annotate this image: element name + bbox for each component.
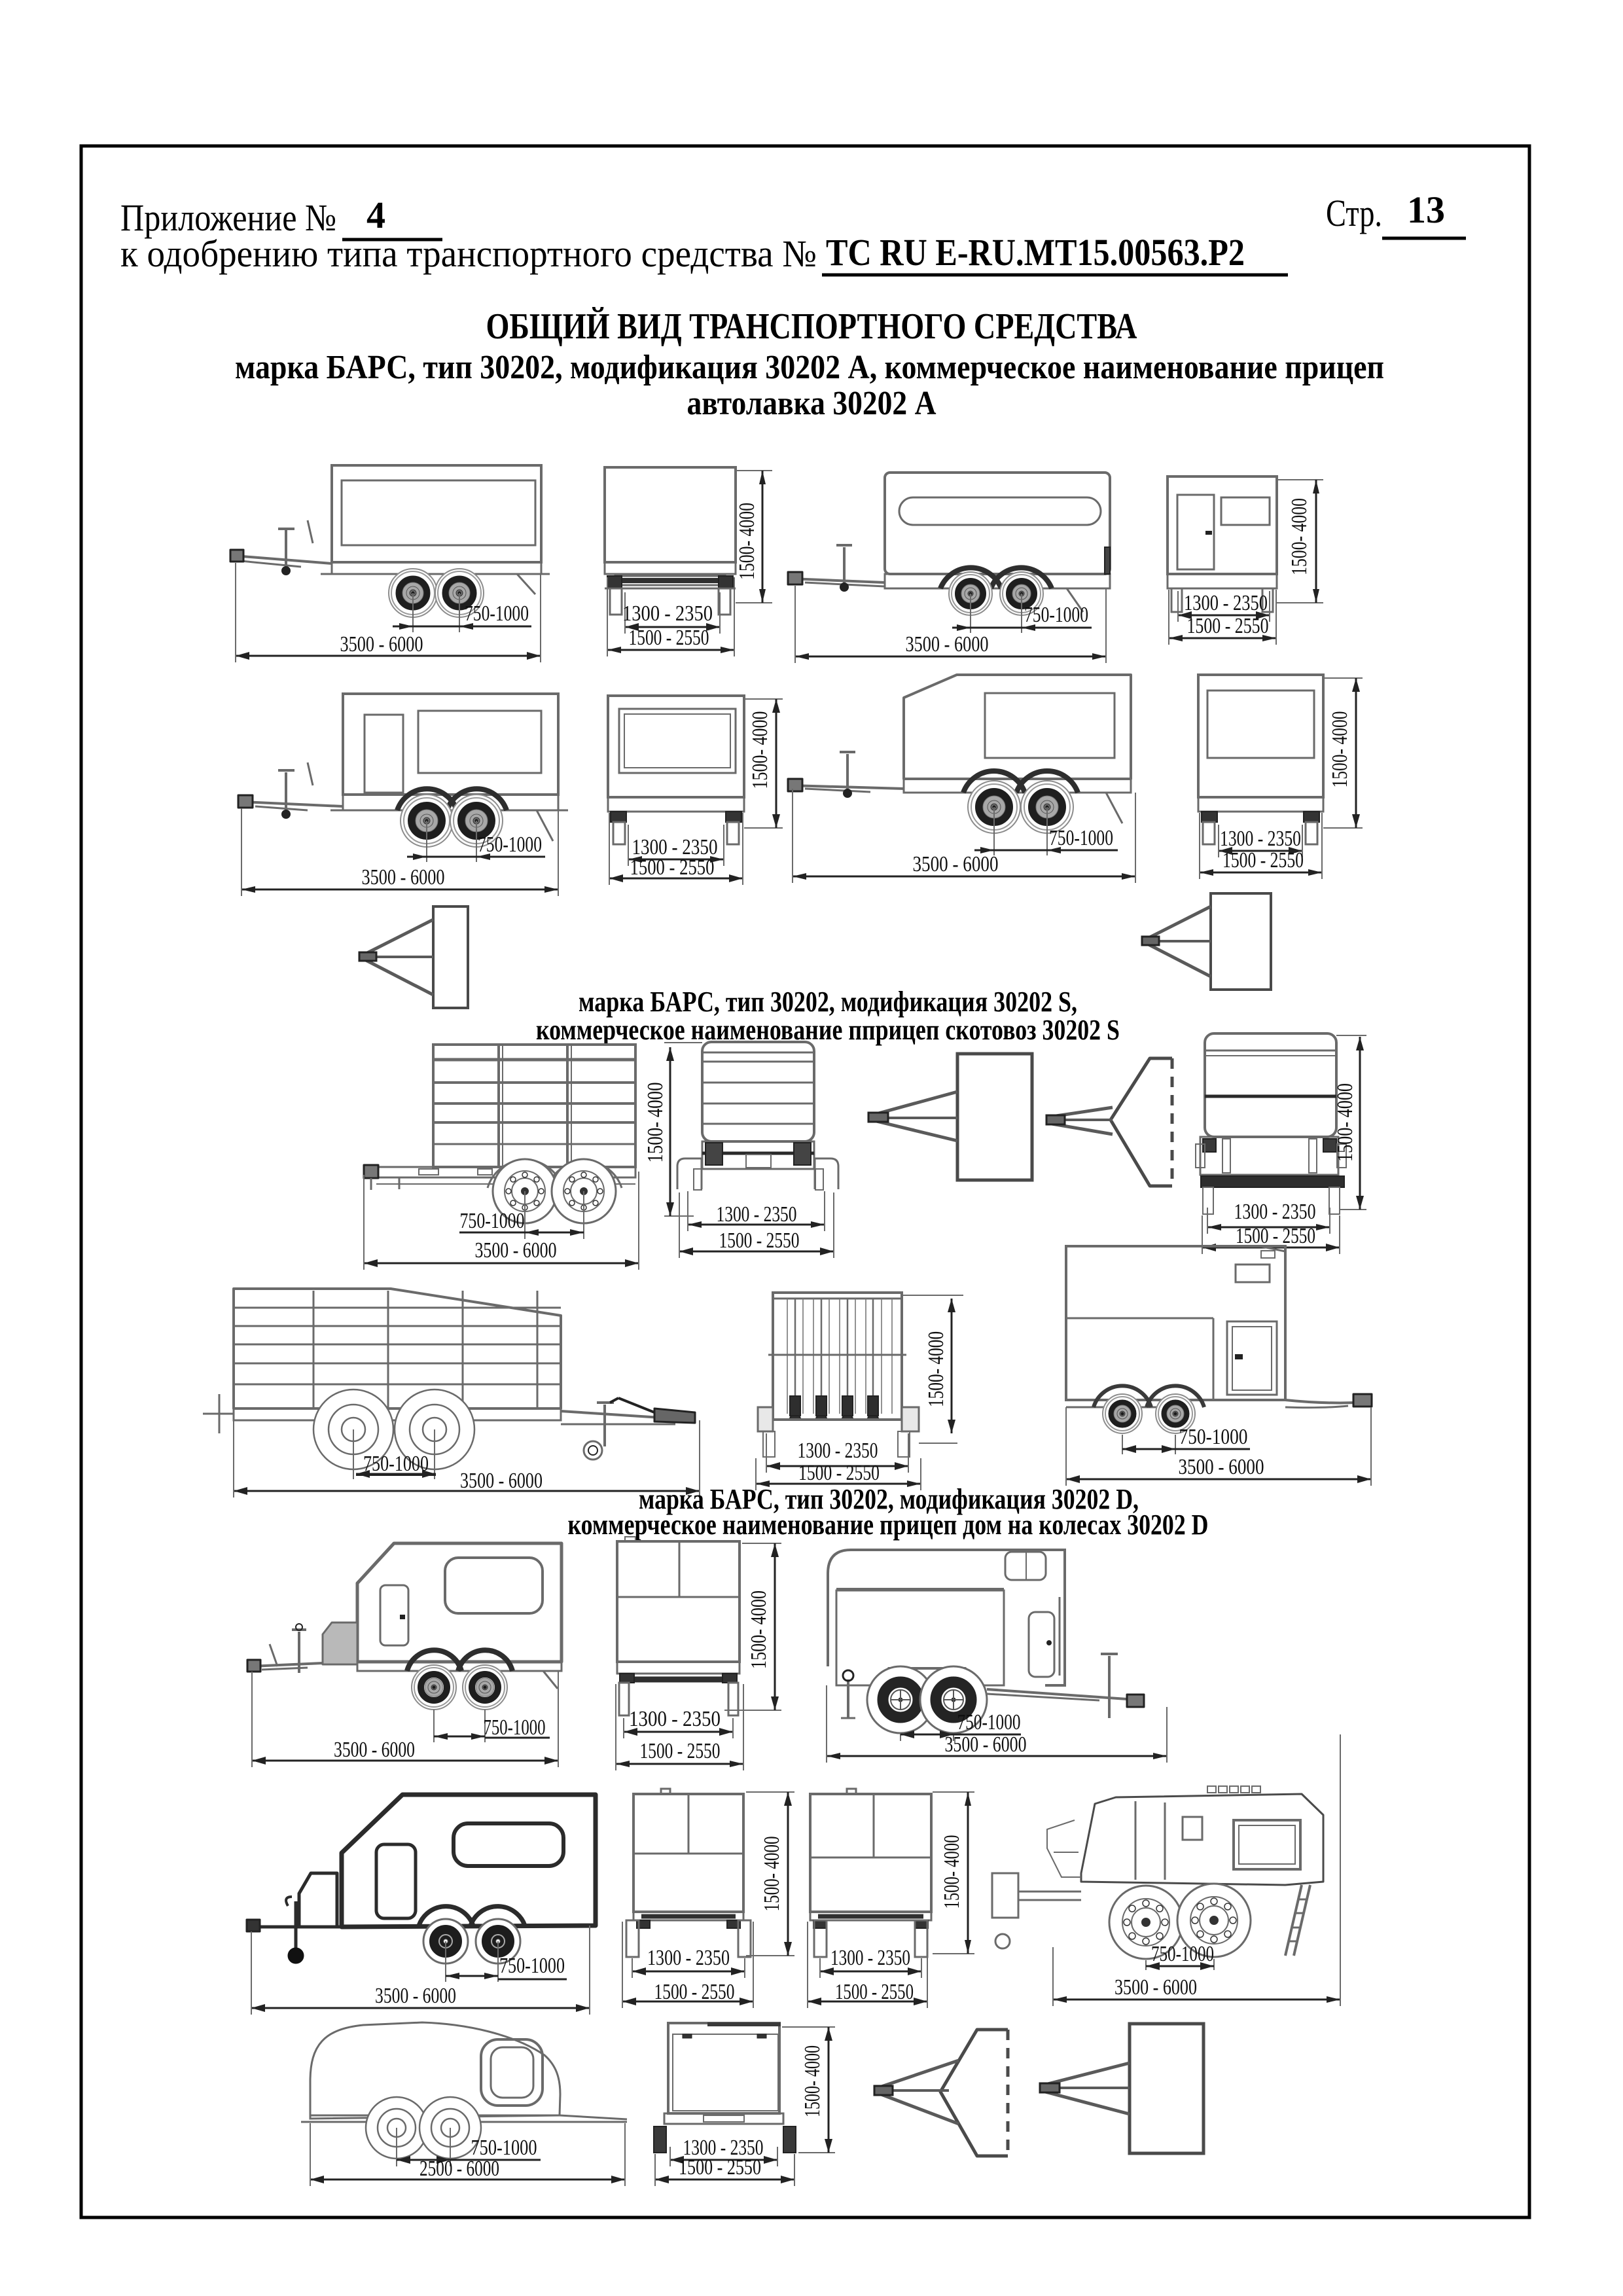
- svg-text:1500 - 2550: 1500 - 2550: [679, 2155, 761, 2179]
- svg-text:1300 - 2350: 1300 - 2350: [1220, 827, 1301, 851]
- svg-text:1500 - 2550: 1500 - 2550: [798, 1461, 880, 1485]
- svg-text:750-1000: 750-1000: [1024, 603, 1088, 627]
- svg-text:3500 - 6000: 3500 - 6000: [375, 1984, 456, 2008]
- svg-text:Стр.: Стр.: [1326, 192, 1382, 234]
- svg-text:1500- 4000: 1500- 4000: [800, 2045, 825, 2117]
- svg-text:750-1000: 750-1000: [478, 833, 542, 857]
- svg-text:3500 - 6000: 3500 - 6000: [906, 632, 989, 656]
- svg-text:750-1000: 750-1000: [460, 1209, 525, 1233]
- svg-text:автолавка 30202 А: автолавка 30202 А: [687, 385, 936, 422]
- svg-text:750-1000: 750-1000: [499, 1954, 565, 1978]
- svg-text:750-1000: 750-1000: [1049, 826, 1113, 850]
- svg-text:к одобрению типа транспортного: к одобрению типа транспортного средства …: [120, 232, 817, 275]
- svg-text:1500 - 2550: 1500 - 2550: [1236, 1224, 1315, 1248]
- svg-text:1500- 4000: 1500- 4000: [643, 1083, 668, 1163]
- svg-text:1500- 4000: 1500- 4000: [1333, 1083, 1357, 1162]
- svg-text:1500 - 2550: 1500 - 2550: [835, 1980, 914, 2004]
- svg-text:1300 - 2350: 1300 - 2350: [647, 1946, 730, 1970]
- svg-text:750-1000: 750-1000: [363, 1452, 429, 1476]
- svg-text:750-1000: 750-1000: [1151, 1942, 1214, 1966]
- svg-text:1500 - 2550: 1500 - 2550: [1222, 848, 1304, 872]
- svg-text:коммерческое наименование приц: коммерческое наименование прицеп дом на …: [568, 1509, 1209, 1541]
- svg-text:2500 - 6000: 2500 - 6000: [419, 2157, 499, 2181]
- svg-text:750-1000: 750-1000: [1179, 1425, 1248, 1449]
- svg-text:750-1000: 750-1000: [465, 601, 529, 626]
- svg-text:марка БАРС, тип 30202, модифик: марка БАРС, тип 30202, модификация 30202…: [235, 349, 1384, 386]
- svg-text:марка БАРС, тип 30202, модифик: марка БАРС, тип 30202, модификация 30202…: [579, 986, 1077, 1018]
- svg-text:ОБЩИЙ ВИД ТРАНСПОРТНОГО СРЕДСТ: ОБЩИЙ ВИД ТРАНСПОРТНОГО СРЕДСТВА: [486, 306, 1137, 347]
- svg-text:3500 - 6000: 3500 - 6000: [362, 865, 445, 889]
- svg-text:750-1000: 750-1000: [957, 1710, 1021, 1734]
- svg-text:1300 - 2350: 1300 - 2350: [629, 1707, 721, 1731]
- svg-text:3500 - 6000: 3500 - 6000: [475, 1238, 557, 1263]
- svg-text:750-1000: 750-1000: [484, 1715, 546, 1740]
- svg-text:3500 - 6000: 3500 - 6000: [945, 1732, 1027, 1757]
- svg-text:1500- 4000: 1500- 4000: [924, 1331, 948, 1407]
- svg-text:1300 - 2350: 1300 - 2350: [830, 1946, 910, 1970]
- svg-text:4: 4: [366, 194, 385, 236]
- svg-text:1500 - 2550: 1500 - 2550: [629, 626, 709, 650]
- svg-text:1300 - 2350: 1300 - 2350: [798, 1439, 878, 1463]
- svg-text:ТС RU E-RU.MT15.00563.Р2: ТС RU E-RU.MT15.00563.Р2: [826, 231, 1245, 274]
- svg-text:1500- 4000: 1500- 4000: [1328, 711, 1352, 788]
- svg-text:1500 - 2550: 1500 - 2550: [719, 1229, 800, 1253]
- svg-text:3500 - 6000: 3500 - 6000: [340, 632, 423, 656]
- svg-text:3500 - 6000: 3500 - 6000: [334, 1738, 415, 1762]
- svg-text:1500- 4000: 1500- 4000: [747, 1590, 771, 1669]
- svg-text:3500 - 6000: 3500 - 6000: [1179, 1455, 1264, 1479]
- svg-text:1500- 4000: 1500- 4000: [735, 503, 759, 580]
- svg-text:13: 13: [1407, 188, 1445, 231]
- svg-text:1500 - 2550: 1500 - 2550: [654, 1980, 735, 2004]
- svg-text:1500- 4000: 1500- 4000: [1287, 498, 1311, 575]
- svg-text:1500- 4000: 1500- 4000: [760, 1837, 784, 1912]
- svg-text:1300 - 2350: 1300 - 2350: [717, 1202, 797, 1227]
- svg-text:1500 - 2550: 1500 - 2550: [1187, 614, 1269, 638]
- svg-text:1500 - 2550: 1500 - 2550: [640, 1739, 721, 1763]
- svg-text:1300 - 2350: 1300 - 2350: [1234, 1200, 1316, 1224]
- svg-text:3500 - 6000: 3500 - 6000: [1115, 1975, 1197, 2000]
- svg-text:3500 - 6000: 3500 - 6000: [913, 852, 999, 876]
- svg-text:1500- 4000: 1500- 4000: [748, 711, 772, 789]
- svg-text:1300 - 2350: 1300 - 2350: [1184, 591, 1268, 615]
- svg-text:1500- 4000: 1500- 4000: [940, 1835, 964, 1909]
- svg-text:коммерческое наименование ппри: коммерческое наименование пприцеп скотов…: [536, 1014, 1120, 1046]
- svg-text:1500 - 2550: 1500 - 2550: [630, 855, 715, 880]
- svg-text:1300 - 2350: 1300 - 2350: [622, 601, 713, 626]
- svg-text:3500 - 6000: 3500 - 6000: [460, 1469, 543, 1493]
